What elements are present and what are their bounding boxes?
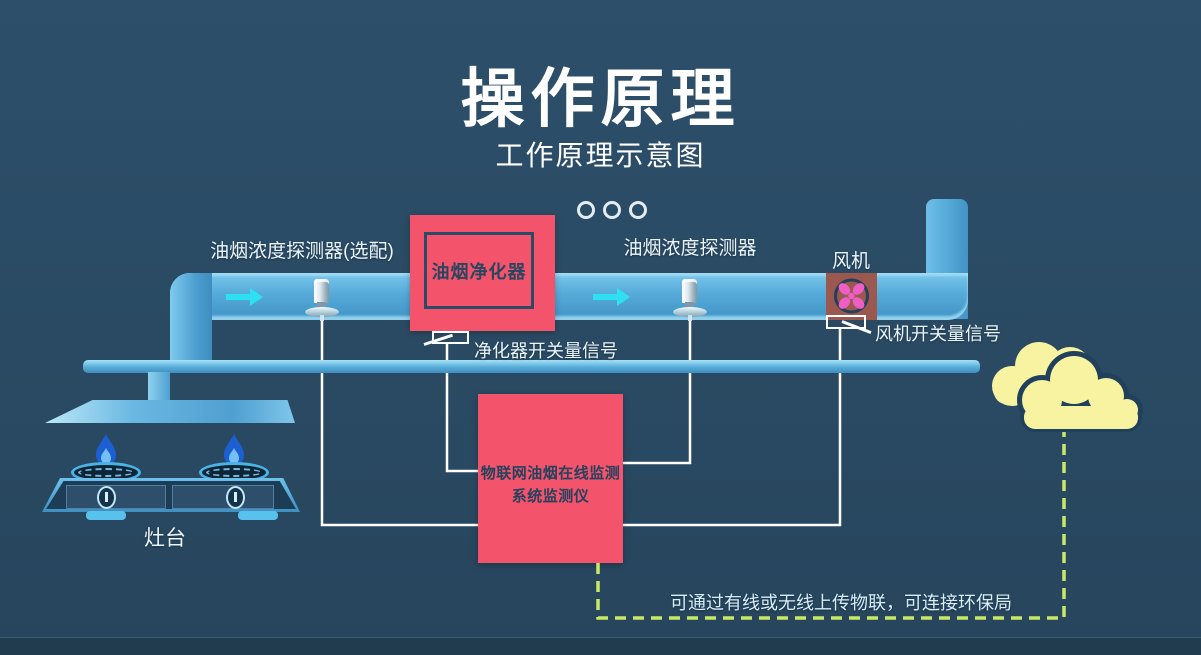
upload-note-label: 可通过有线或无线上传物联，可连接环保局 — [612, 589, 1012, 615]
bottom-strip — [0, 637, 1201, 655]
detector-optional-label: 油烟浓度探测器(选配) — [182, 236, 422, 263]
fan-label: 风机 — [811, 246, 891, 273]
purifier-signal-label: 净化器开关量信号 — [474, 337, 618, 363]
cloud-icon — [982, 336, 1144, 436]
fan-signal-label: 风机开关量信号 — [875, 320, 1001, 346]
schematic-canvas: 操作原理 工作原理示意图 — [0, 0, 1201, 655]
upload-dashed-path — [0, 0, 1201, 655]
detector-label: 油烟浓度探测器 — [570, 233, 810, 260]
